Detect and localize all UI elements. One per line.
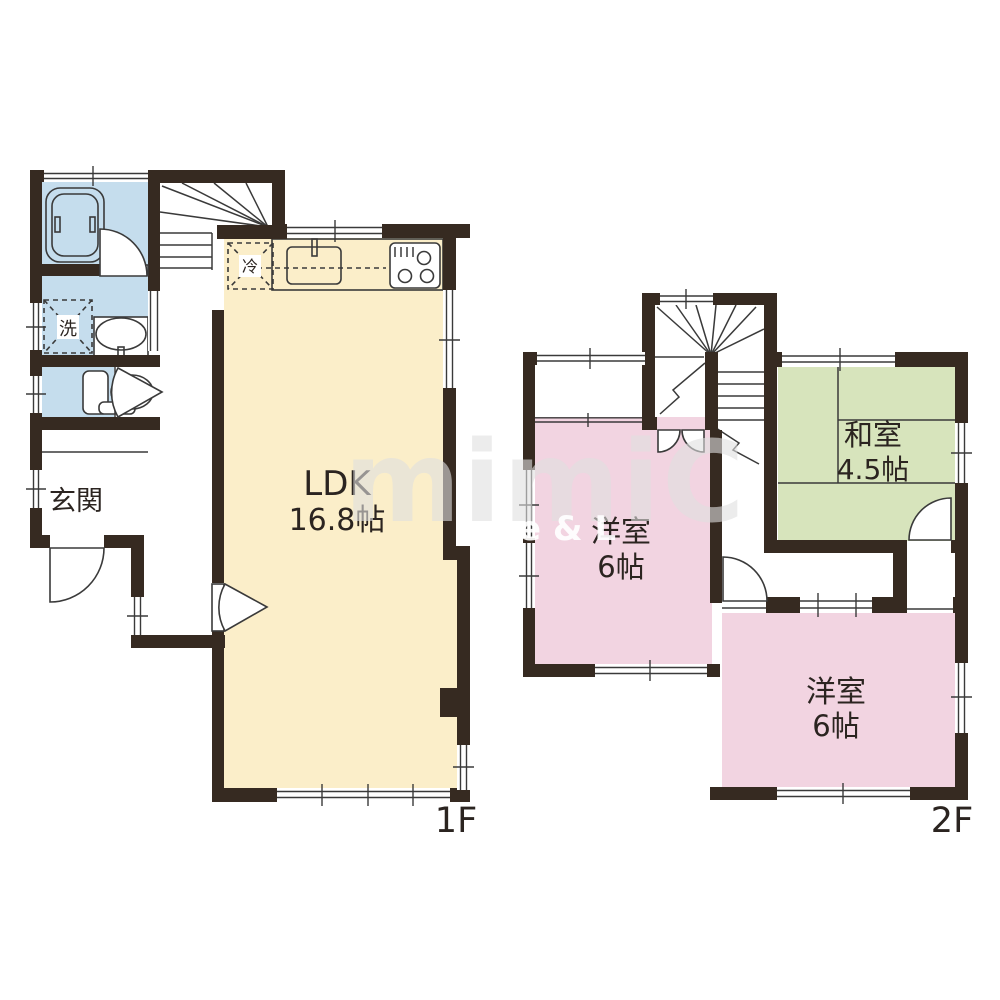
washitsu-label: 和室 (844, 418, 902, 452)
room2-label: 洋室 (806, 675, 866, 710)
room2-size-label: 6帖 (812, 709, 859, 743)
watermark: mimiC e & L (344, 418, 746, 549)
washroom-door-panel (148, 291, 160, 351)
genkan-label: 玄関 (49, 486, 103, 517)
floor-plan-page: LDK 16.8帖 玄関 洗 冷 1F (0, 0, 1000, 1000)
washer-label: 洗 (59, 319, 77, 340)
floor-plan-canvas: LDK 16.8帖 玄関 洗 冷 1F (0, 0, 1000, 1000)
fridge-label: 冷 (242, 257, 258, 276)
watermark-sub: e & L (518, 509, 616, 549)
wall-pillar (440, 688, 470, 717)
floor-2f-label: 2F (931, 801, 973, 841)
floor-1f-label: 1F (435, 801, 477, 841)
room1-size-label: 6帖 (597, 550, 644, 584)
wash-basin (94, 317, 148, 356)
washitsu-size-label: 4.5帖 (837, 453, 910, 486)
gas-stove (390, 243, 440, 288)
